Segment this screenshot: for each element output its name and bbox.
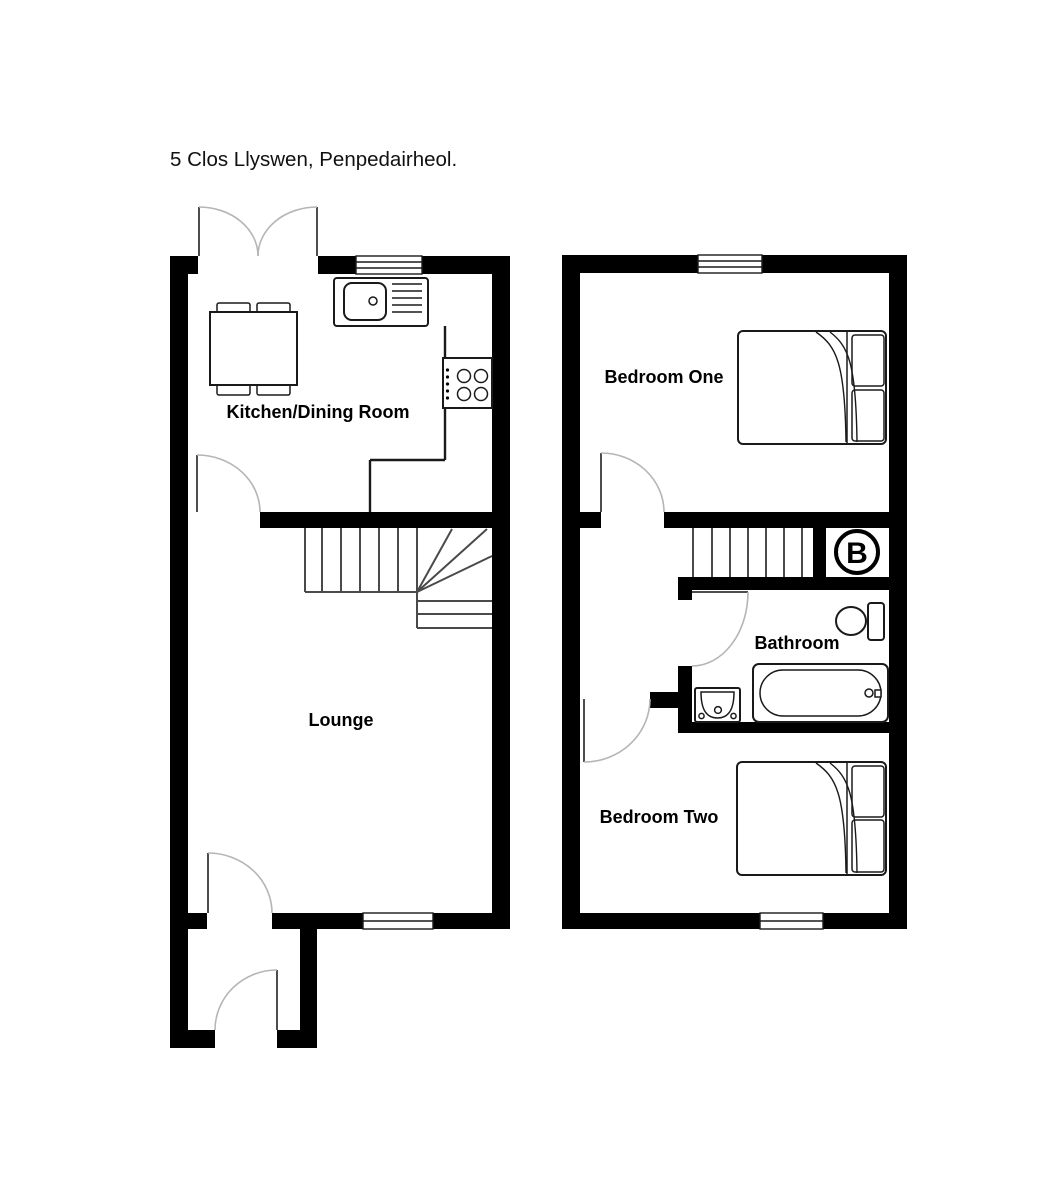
floorplan-drawing: 5 Clos Llyswen, Penpedairheol. bbox=[0, 0, 1062, 1200]
pillow-icon bbox=[852, 335, 884, 386]
floorplan-page: 5 Clos Llyswen, Penpedairheol. bbox=[0, 0, 1062, 1200]
boiler-icon: B bbox=[836, 531, 878, 573]
room-label-lounge: Lounge bbox=[309, 710, 374, 730]
bedroom-one-window-icon bbox=[698, 255, 762, 273]
kitchen-window-icon bbox=[356, 256, 422, 274]
hob-icon bbox=[443, 358, 492, 408]
bed-icon bbox=[737, 762, 886, 875]
kitchen-sink-icon bbox=[334, 278, 428, 326]
room-label-bedroom-one: Bedroom One bbox=[604, 367, 723, 387]
pillow-icon bbox=[852, 766, 884, 817]
wash-basin-icon bbox=[695, 688, 740, 722]
bed-icon bbox=[738, 331, 886, 444]
bath-icon bbox=[753, 664, 888, 722]
room-label-kitchen-dining: Kitchen/Dining Room bbox=[227, 402, 410, 422]
room-label-bathroom: Bathroom bbox=[755, 633, 840, 653]
page-title: 5 Clos Llyswen, Penpedairheol. bbox=[170, 148, 457, 171]
bedroom-two-window-icon bbox=[760, 913, 823, 929]
lounge-window-icon bbox=[363, 913, 433, 929]
room-label-bedroom-two: Bedroom Two bbox=[600, 807, 719, 827]
dining-table-icon bbox=[210, 303, 297, 395]
boiler-label: B bbox=[846, 537, 868, 570]
